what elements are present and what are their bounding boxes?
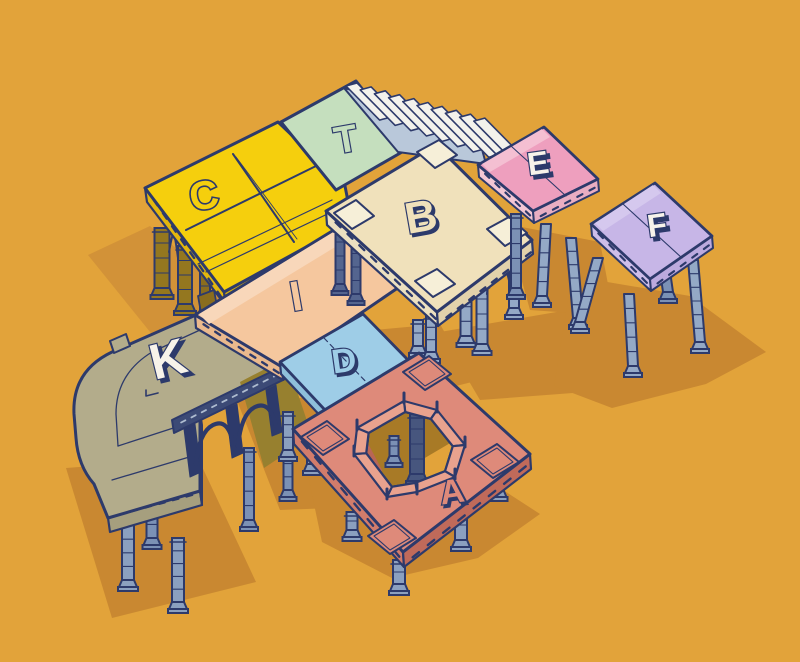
svg-text:A: A	[437, 471, 467, 512]
svg-text:D: D	[329, 340, 359, 381]
